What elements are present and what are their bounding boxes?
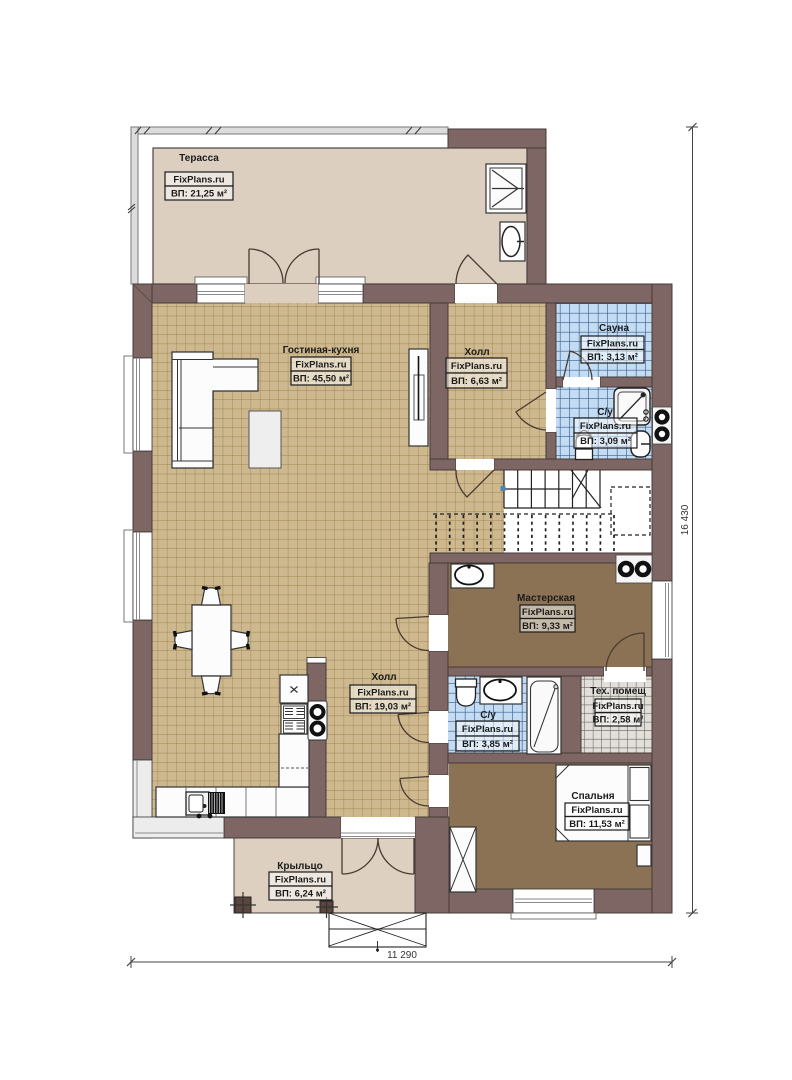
svg-text:11 290: 11 290: [387, 950, 417, 961]
svg-text:ВП: 19,03 м²: ВП: 19,03 м²: [355, 702, 411, 713]
svg-text:FixPlans.ru: FixPlans.ru: [173, 175, 224, 186]
svg-text:ВП: 3,85 м²: ВП: 3,85 м²: [462, 739, 513, 750]
svg-text:FixPlans.ru: FixPlans.ru: [522, 607, 573, 618]
svg-text:FixPlans.ru: FixPlans.ru: [571, 805, 622, 816]
svg-text:FixPlans.ru: FixPlans.ru: [295, 360, 346, 371]
svg-text:Крыльцо: Крыльцо: [277, 861, 323, 872]
svg-text:ВП: 3,13 м²: ВП: 3,13 м²: [587, 352, 638, 363]
svg-text:ВП: 2,58 м²: ВП: 2,58 м²: [593, 715, 644, 726]
svg-text:Мастерская: Мастерская: [517, 593, 575, 604]
svg-text:Холл: Холл: [464, 347, 489, 358]
svg-text:FixPlans.ru: FixPlans.ru: [587, 339, 638, 350]
svg-text:FixPlans.ru: FixPlans.ru: [451, 361, 502, 372]
svg-text:Тех. помещ: Тех. помещ: [590, 686, 646, 697]
svg-text:ВП: 6,63 м²: ВП: 6,63 м²: [451, 376, 502, 387]
svg-text:FixPlans.ru: FixPlans.ru: [357, 688, 408, 699]
svg-text:FixPlans.ru: FixPlans.ru: [462, 724, 513, 735]
svg-text:Терасса: Терасса: [179, 153, 219, 164]
svg-text:ВП: 45,50 м²: ВП: 45,50 м²: [293, 374, 349, 385]
svg-text:Холл: Холл: [371, 672, 396, 683]
svg-text:Сауна: Сауна: [599, 323, 630, 334]
svg-text:16 430: 16 430: [680, 504, 691, 535]
svg-text:ВП: 6,24 м²: ВП: 6,24 м²: [275, 889, 326, 900]
svg-text:Гостиная-кухня: Гостиная-кухня: [283, 345, 360, 356]
svg-text:С/у: С/у: [597, 407, 613, 418]
svg-text:С/у: С/у: [480, 710, 496, 721]
svg-text:FixPlans.ru: FixPlans.ru: [275, 875, 326, 886]
svg-text:ВП: 21,25 м²: ВП: 21,25 м²: [171, 189, 227, 200]
svg-text:Спальня: Спальня: [571, 791, 614, 802]
svg-text:FixPlans.ru: FixPlans.ru: [592, 701, 643, 712]
svg-text:FixPlans.ru: FixPlans.ru: [580, 421, 631, 432]
svg-text:ВП: 11,53 м²: ВП: 11,53 м²: [569, 819, 625, 830]
svg-text:ВП: 3,09 м²: ВП: 3,09 м²: [580, 436, 631, 447]
svg-text:ВП: 9,33 м²: ВП: 9,33 м²: [522, 621, 573, 632]
